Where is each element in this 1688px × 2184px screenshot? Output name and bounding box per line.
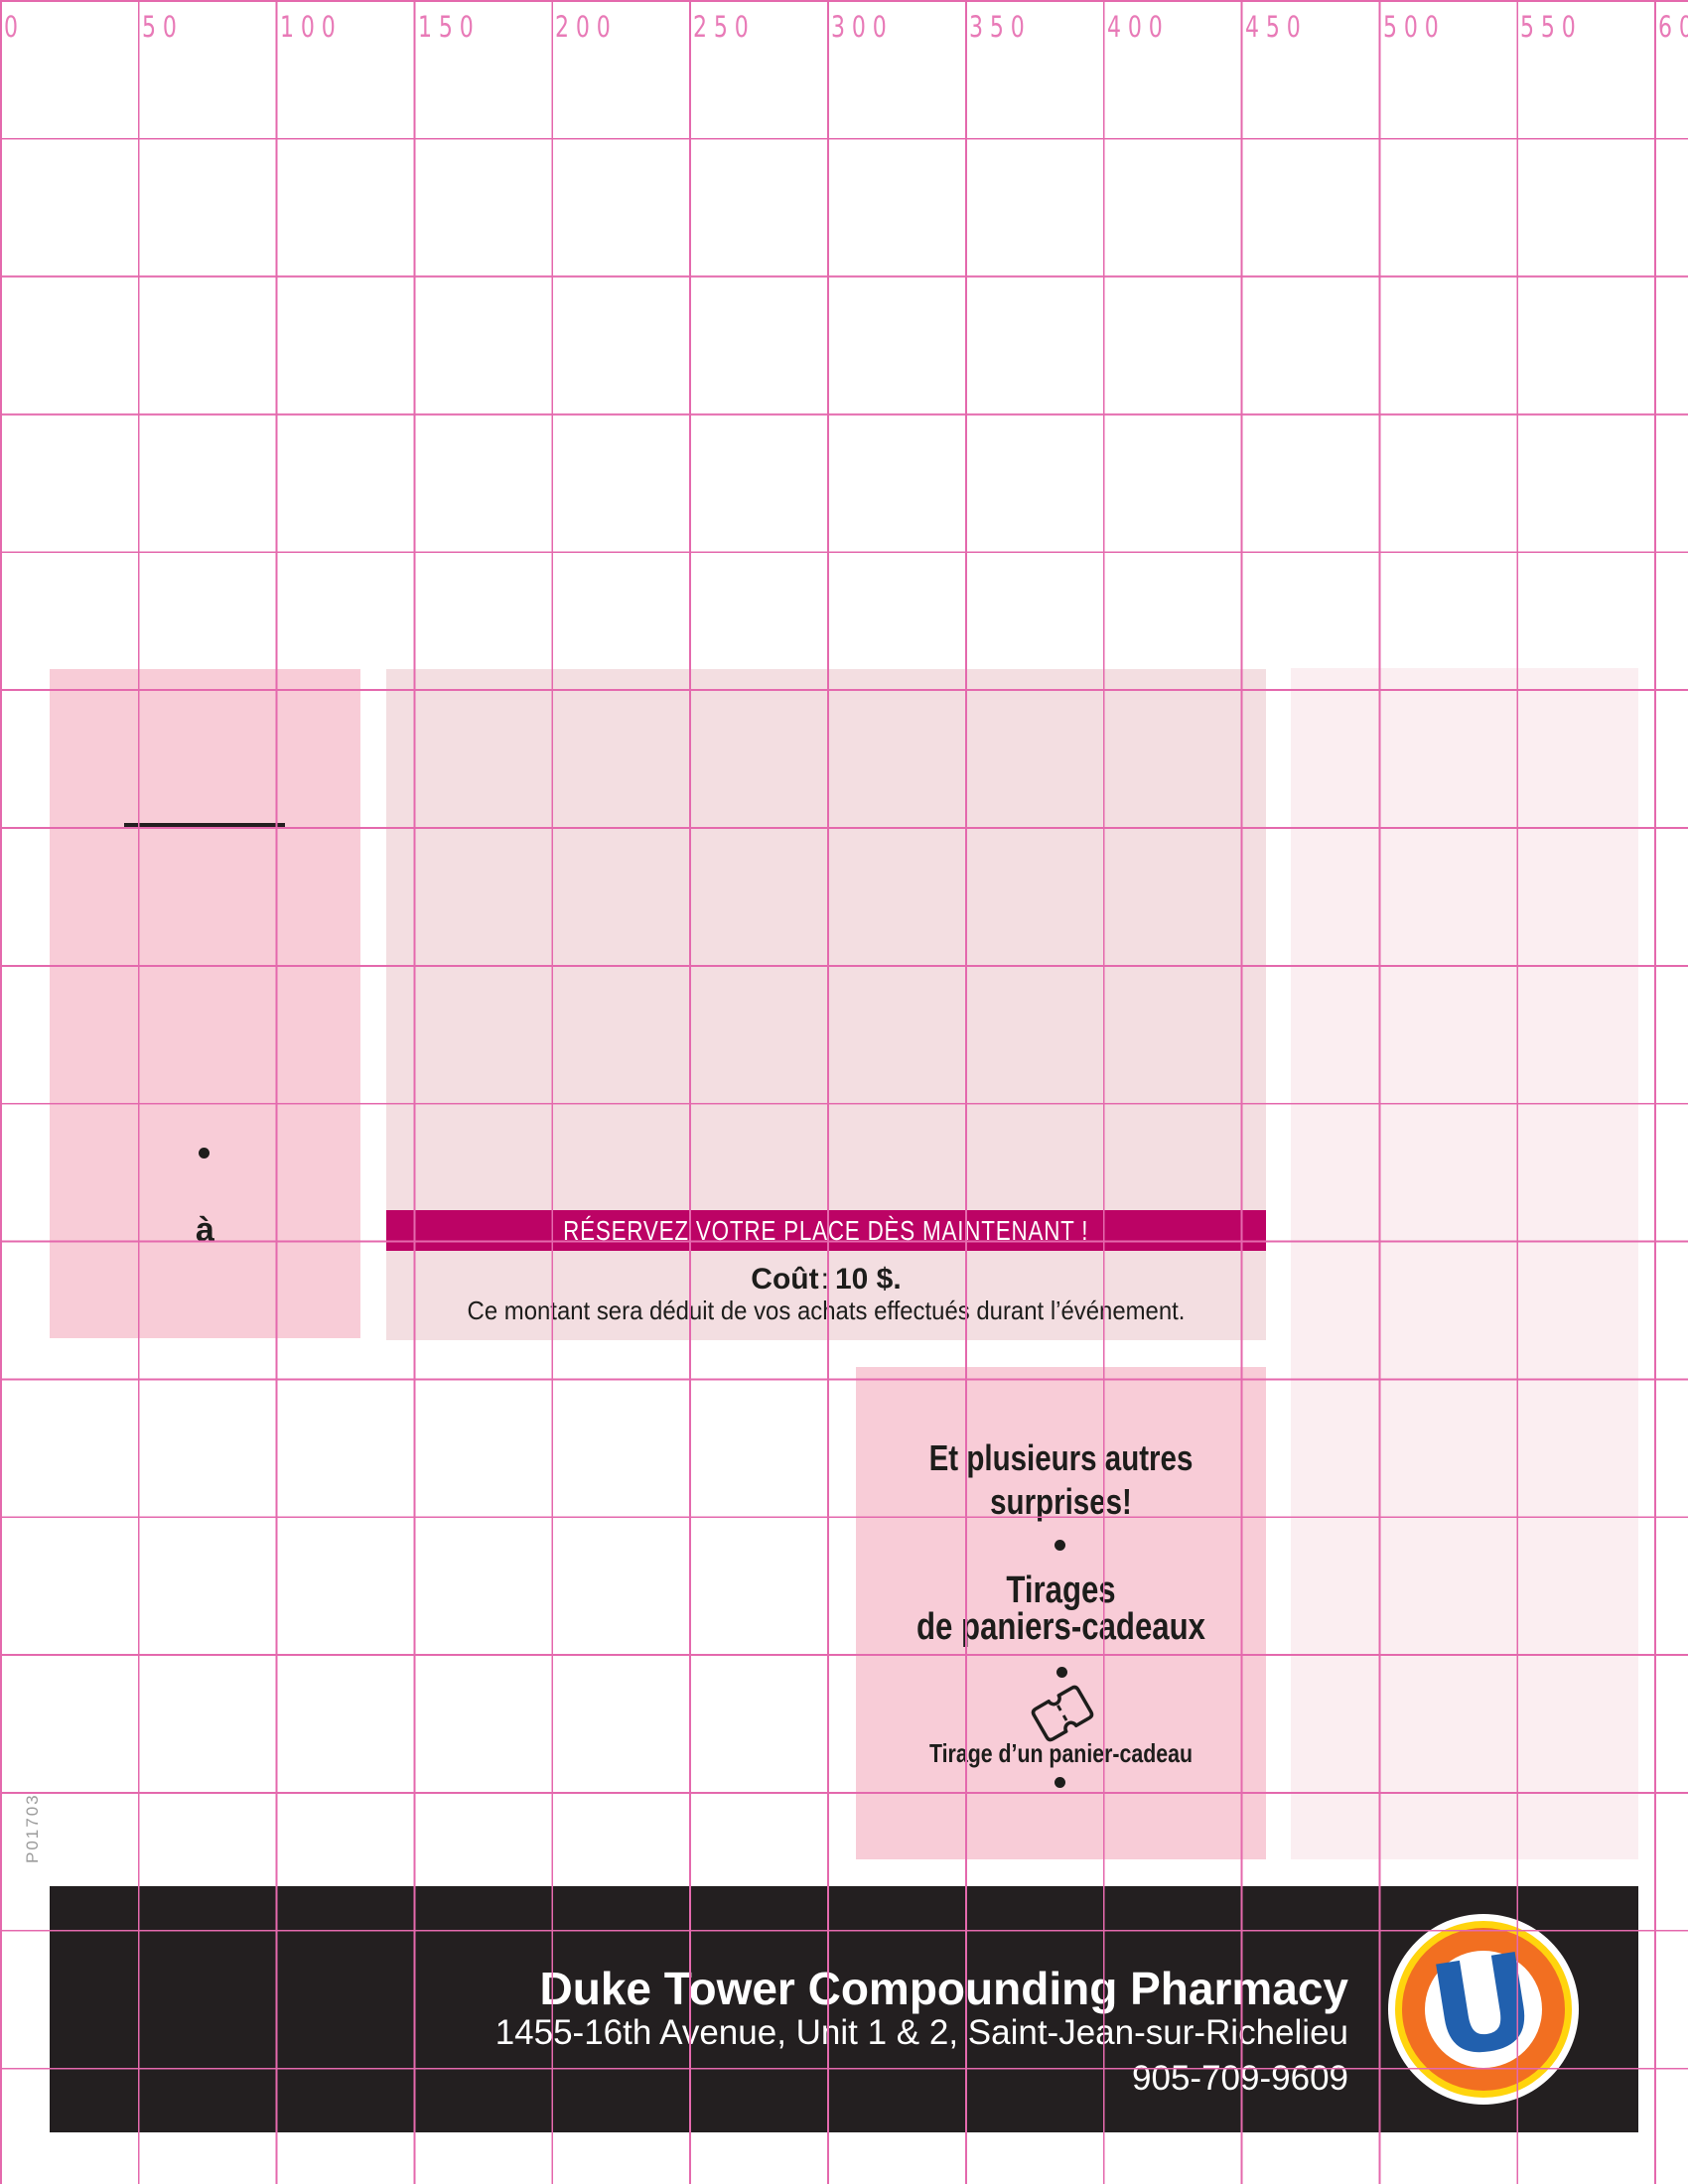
bullet-icon (199, 1148, 210, 1159)
ruler-label: 550 (1520, 10, 1583, 44)
ruler-label: 400 (1107, 10, 1170, 44)
prizes-line-1: Et plusieurs autres (893, 1437, 1229, 1479)
side-column-block (1291, 668, 1638, 1859)
date-underline (124, 823, 285, 828)
reserve-banner-text: RÉSERVEZ VOTRE PLACE DÈS MAINTENANT ! (563, 1215, 1088, 1247)
cost-note: Ce montant sera déduit de vos achats eff… (421, 1296, 1230, 1326)
ruler-label: 450 (1245, 10, 1308, 44)
ruler-label: 100 (280, 10, 343, 44)
ruler-label: 0 (4, 10, 25, 44)
ruler-label: 600 (1658, 10, 1688, 44)
cost-colon: : (819, 1263, 835, 1296)
prizes-line-2: surprises! (893, 1481, 1229, 1523)
ruler-label: 150 (418, 10, 481, 44)
proof-code: P01703 (23, 1800, 53, 1863)
ruler-label: 500 (1383, 10, 1446, 44)
time-separator-label: à (50, 1211, 360, 1250)
pharmacy-name: Duke Tower Compounding Pharmacy (540, 1962, 1348, 2015)
pharmacy-address: 1455-16th Avenue, Unit 1 & 2, Saint-Jean… (495, 2013, 1348, 2053)
cost-line: Coût:10 $. (386, 1263, 1266, 1297)
bullet-icon (1055, 1540, 1065, 1551)
pharmacy-phone: 905-709-9609 (1132, 2059, 1348, 2099)
ruler-label: 200 (555, 10, 618, 44)
cost-value: 10 $. (835, 1263, 902, 1296)
ruler-label: 50 (142, 10, 184, 44)
cost-label: Coût (751, 1263, 818, 1296)
ruler-label: 300 (831, 10, 894, 44)
prizes-line-4: de paniers-cadeaux (893, 1606, 1229, 1649)
ticket-caption: Tirage d’un panier-cadeau (893, 1738, 1229, 1769)
ruler-label: 250 (693, 10, 756, 44)
ruler-label: 350 (969, 10, 1032, 44)
uniprix-logo: U (1388, 1914, 1579, 2105)
reserve-banner: RÉSERVEZ VOTRE PLACE DÈS MAINTENANT ! (386, 1210, 1266, 1251)
bullet-icon (1055, 1777, 1065, 1788)
bullet-icon (1056, 1667, 1067, 1678)
flyer-proof-page: à RÉSERVEZ VOTRE PLACE DÈS MAINTENANT ! … (0, 0, 1688, 2184)
